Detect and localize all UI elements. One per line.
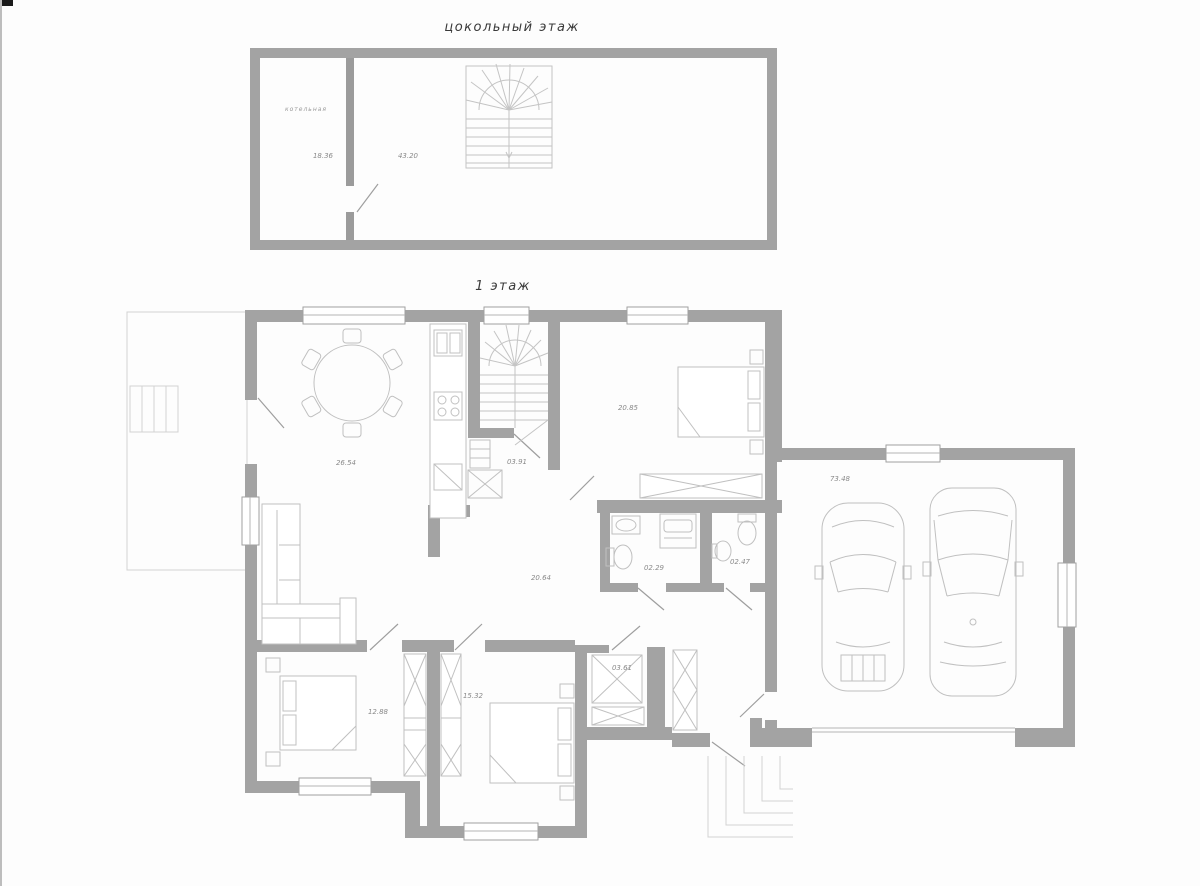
boiler-room-area: 18.36 [313,152,334,160]
stairwell-left-wall [468,322,480,430]
car-left [815,503,911,691]
bed-top-bedroom [678,350,764,454]
wardrobe-middle-bedroom [441,654,461,776]
shower [660,514,696,548]
bedroom-left-door-swing [370,624,398,650]
bedroom-top-door-swing [570,476,594,500]
dining-table [301,329,404,437]
wc-left-fixtures [606,514,696,569]
bedrooms-divider-wall [427,640,440,826]
bedroom-middle-area: 15.32 [463,692,484,700]
window [464,823,538,840]
wc-left-door-swing [638,588,664,610]
entry-door-swing [712,742,745,766]
living-dining-area: 26.54 [336,459,356,467]
sofa [262,504,356,644]
terrace [127,312,247,570]
basement-staircase [466,64,552,168]
window [886,445,940,462]
garage-entry-door-swing [740,694,764,717]
wc-right-door-swing [726,588,752,610]
bedroom-top-area: 20.85 [618,404,639,412]
hall-area: 20.64 [531,574,551,582]
pantry-shelves [468,440,502,498]
bedroom-top-bottom-wall [597,500,782,513]
window [484,307,529,324]
wc-right-fixtures [712,514,756,561]
floorplan-page: цокольный этаж 1 этаж [0,0,1200,886]
basement-partition-wall [346,58,354,186]
porch-steps [708,756,793,837]
bedroom-left-area: 12.88 [368,708,389,716]
pantry-area: 03.91 [507,458,527,466]
basement-door-swing [357,184,378,212]
hall-closet-strip [673,650,697,730]
car-right [923,488,1023,696]
wardrobe-top-bedroom [640,474,762,498]
garage-door [812,728,1015,732]
scan-left-edge [0,0,2,886]
stairwell-right-wall [548,322,560,470]
window [627,307,688,324]
wardrobe-door-swing [612,626,640,650]
bed-middle-bedroom [490,684,574,800]
pantry-door-swing [514,434,540,458]
first-floor-plan: 26.54 03.91 20.85 20.64 02.29 02.47 12.8… [127,307,1076,840]
boiler-room-label: котельная [285,106,327,113]
bedroom-middle-door-swing [455,624,482,650]
first-floor-staircase [480,325,548,445]
wardrobe-room-area: 03.61 [612,664,632,672]
wardrobe-left-bedroom [404,654,426,776]
window [242,497,259,545]
window [1058,563,1076,627]
basement-plan: котельная 18.36 43.20 [250,48,777,250]
window [299,778,371,795]
first-floor-title: 1 этаж [475,279,531,294]
basement-title: цокольный этаж [444,20,579,35]
kitchen-counter [430,324,466,518]
garage-area: 73.48 [830,475,851,483]
bed-left-bedroom [266,658,356,766]
terrace-door-swing [258,398,284,428]
window [303,307,405,324]
floorplan-drawing: цокольный этаж 1 этаж [0,0,1200,886]
basement-hall-area: 43.20 [398,152,419,160]
wc-left-area: 02.29 [644,564,665,572]
wc-right-area: 02.47 [730,558,751,566]
